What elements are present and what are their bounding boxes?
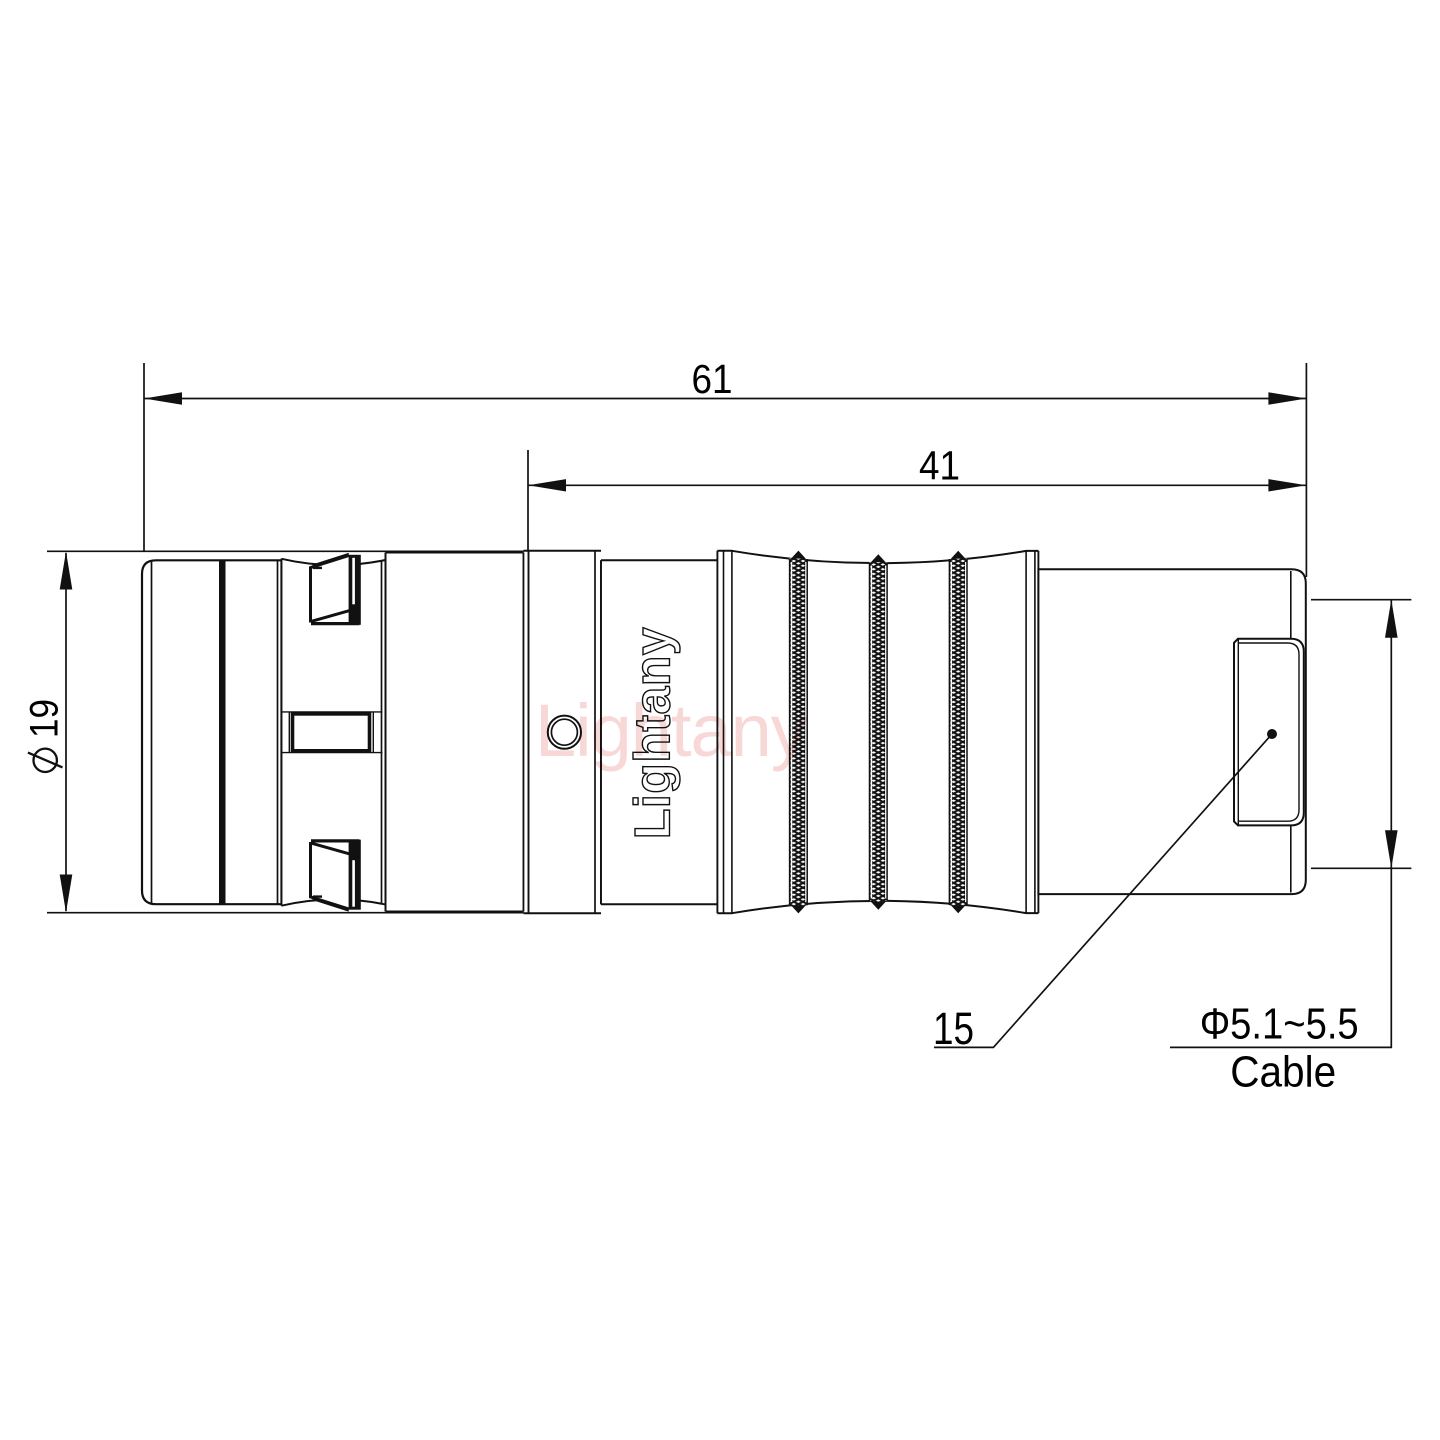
svg-text:19: 19: [23, 699, 67, 738]
svg-text:Φ5.1~5.5: Φ5.1~5.5: [1200, 1000, 1359, 1049]
svg-text:Cable: Cable: [1230, 1048, 1336, 1097]
svg-text:Lightany: Lightany: [535, 689, 808, 772]
svg-text:61: 61: [692, 356, 733, 402]
svg-text:41: 41: [919, 443, 960, 489]
svg-text:15: 15: [933, 1003, 974, 1054]
